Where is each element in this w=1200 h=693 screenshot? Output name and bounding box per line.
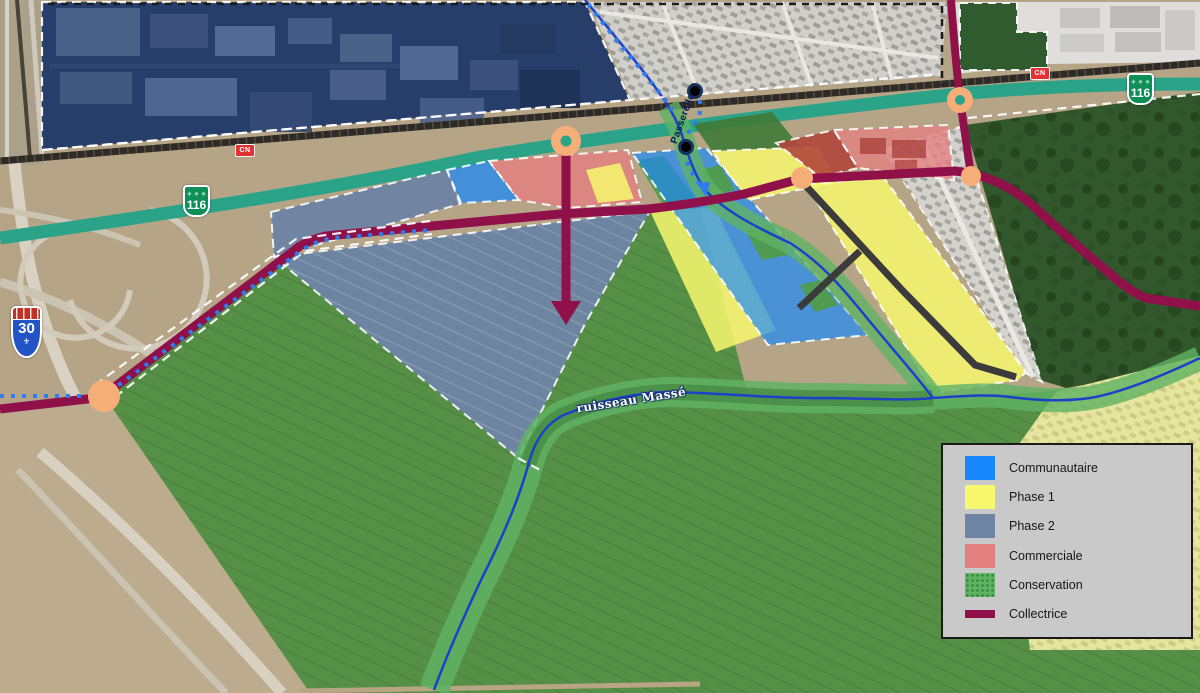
autoroute-shield-band	[13, 308, 40, 320]
legend-label: Commerciale	[1009, 549, 1083, 563]
legend-item-collectrice: Collectrice	[965, 602, 1191, 626]
passerelle-node-south	[680, 141, 693, 154]
legend-swatch	[965, 573, 995, 597]
legend-item-conservation: Conservation	[965, 573, 1191, 597]
legend-label: Communautaire	[1009, 461, 1098, 475]
legend-swatch	[965, 602, 995, 626]
legend-label: Collectrice	[1009, 607, 1067, 621]
autoroute-30-shield: 30 ⚜	[11, 306, 42, 358]
route-number: 116	[1131, 87, 1150, 99]
fleur-de-lis-icon: ⚜	[23, 337, 30, 346]
legend-swatch	[965, 544, 995, 568]
legend-item-communautaire: Communautaire	[965, 456, 1191, 480]
legend-swatch	[965, 485, 995, 509]
legend-item-phase2: Phase 2	[965, 514, 1191, 538]
route-116-shield-west: ⚜ ⚜ ⚜ 116	[183, 185, 210, 217]
legend-label: Phase 1	[1009, 490, 1055, 504]
legend-swatch	[965, 514, 995, 538]
cn-rail-badge-east: CN	[1030, 67, 1050, 80]
cn-rail-badge-west: CN	[235, 144, 255, 157]
legend-swatch	[965, 456, 995, 480]
legend-label: Phase 2	[1009, 519, 1055, 533]
zoning-map: ruisseau Massé Passerelle CN CN ⚜ ⚜ ⚜ 11…	[0, 0, 1200, 693]
legend-item-phase1: Phase 1	[965, 485, 1191, 509]
legend-label: Conservation	[1009, 578, 1083, 592]
legend: Communautaire Phase 1 Phase 2 Commercial…	[941, 443, 1193, 639]
route-number: 30	[18, 320, 35, 337]
node-southwest	[88, 380, 120, 412]
route-116-shield-east: ⚜ ⚜ ⚜ 116	[1127, 73, 1154, 105]
node-mid-east	[791, 167, 813, 189]
node-far-east	[961, 166, 981, 186]
route-number: 116	[187, 199, 206, 211]
left-highway-strip	[0, 0, 44, 165]
passerelle-node-north	[689, 85, 702, 98]
legend-item-commerciale: Commerciale	[965, 544, 1191, 568]
